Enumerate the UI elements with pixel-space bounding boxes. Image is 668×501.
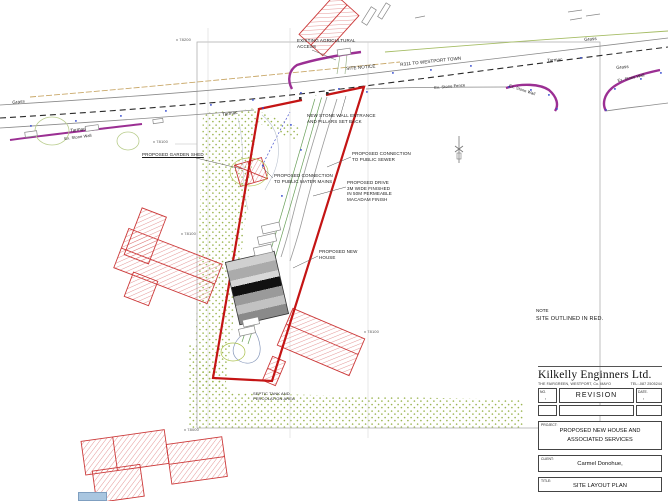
entrance-pillar-2 (326, 92, 329, 95)
label-septic: SEPTIC TANK AND PERCOLATION AREA (253, 391, 295, 401)
company-tel: TEL:-087 2505244 (631, 382, 662, 386)
label-connection_sewer: PROPOSED CONNECTION TO PUBLIC SEWER (352, 151, 411, 162)
client-label: CLIENT: (541, 457, 554, 461)
project-label: PROJECT: (541, 423, 557, 427)
company-address-row: THE FAIRGREEN, WESTPORT, Co. MAYO TEL:-0… (538, 382, 662, 386)
label-grid_78100: x 78100 (153, 139, 168, 144)
company-name: Kilkelly Enginners Ltd. (538, 369, 662, 381)
existing-buildings-southwest (81, 422, 228, 501)
revision-no-empty (538, 405, 557, 416)
revision-no-value: , (545, 395, 546, 401)
revision-title-empty (559, 405, 634, 416)
proposed-house (225, 251, 288, 325)
site-layout-plan-page: EXISTING AGRICULTURAL ACCESSSITE NOTICEN… (0, 0, 668, 501)
label-grid_78100: x 78100 (181, 231, 196, 236)
drawing-title-label: TITLE: (541, 479, 551, 483)
revision-title: REVISION (576, 392, 617, 399)
revision-date-label: DATE. (638, 390, 648, 394)
existing-building-southeast (277, 308, 364, 375)
project-box: PROJECT: PROPOSED NEW HOUSE AND ASSOCIAT… (538, 421, 662, 450)
label-grass: Grass (616, 64, 629, 71)
label-garden_shed: PROPOSED GARDEN SHED (142, 152, 204, 158)
entrance-pillar-1 (299, 97, 302, 100)
utility-pole-icon (455, 136, 463, 163)
road-south-edge-right (606, 103, 668, 111)
revision-date-empty (636, 405, 662, 416)
label-grid_78100: x 78100 (364, 329, 379, 334)
drawing-title-box: TITLE: SITE LAYOUT PLAN (538, 477, 662, 492)
misc-survey-marks (362, 3, 600, 25)
revision-empty-row (538, 405, 662, 416)
label-connection_water: PROPOSED CONNECTION TO PUBLIC WATER MAIN… (274, 173, 333, 184)
revision-date-cell: DATE. , (636, 388, 662, 403)
label-grass: Grass (584, 36, 597, 43)
revision-header-row: NO. , REVISION DATE. , (538, 388, 662, 403)
label-proposed_drive: PROPOSED DRIVE 3M WIDE FINISHED IN 50M P… (347, 180, 392, 203)
note-body: SITE OUTLINED IN RED. (536, 316, 656, 322)
label-existing_agricultural_access: EXISTING AGRICULTURAL ACCESS (297, 38, 356, 49)
revision-no-label: NO. (540, 390, 546, 394)
bottom-left-thumbnail-fragment (78, 492, 107, 501)
client-name: Carmel Donohue, (539, 461, 661, 467)
label-proposed_new_house: PROPOSED NEW HOUSE (319, 249, 357, 260)
tree-canopy-2 (117, 132, 139, 150)
drawing-title: SITE LAYOUT PLAN (539, 483, 661, 489)
client-box: CLIENT: Carmel Donohue, (538, 455, 662, 472)
label-grid_78000: x 78000 (184, 427, 199, 432)
label-new_stone_wall: NEW STONE WALL ENTRANCE AND PILLARS SET … (307, 113, 376, 124)
label-grid_78200: x 78200 (176, 37, 191, 42)
title-block: Kilkelly Enginners Ltd. THE FAIRGREEN, W… (538, 366, 662, 492)
revision-title-cell: REVISION (559, 388, 634, 403)
note-block: NOTE SITE OUTLINED IN RED. (536, 308, 656, 322)
road-green-verge-line (385, 31, 668, 52)
project-name: PROPOSED NEW HOUSE AND ASSOCIATED SERVIC… (539, 427, 661, 444)
company-address: THE FAIRGREEN, WESTPORT, Co. MAYO (538, 382, 611, 386)
revision-date-value: , (643, 395, 644, 401)
revision-no-cell: NO. , (538, 388, 557, 403)
stone-walls (10, 52, 660, 140)
note-heading: NOTE (536, 308, 656, 313)
